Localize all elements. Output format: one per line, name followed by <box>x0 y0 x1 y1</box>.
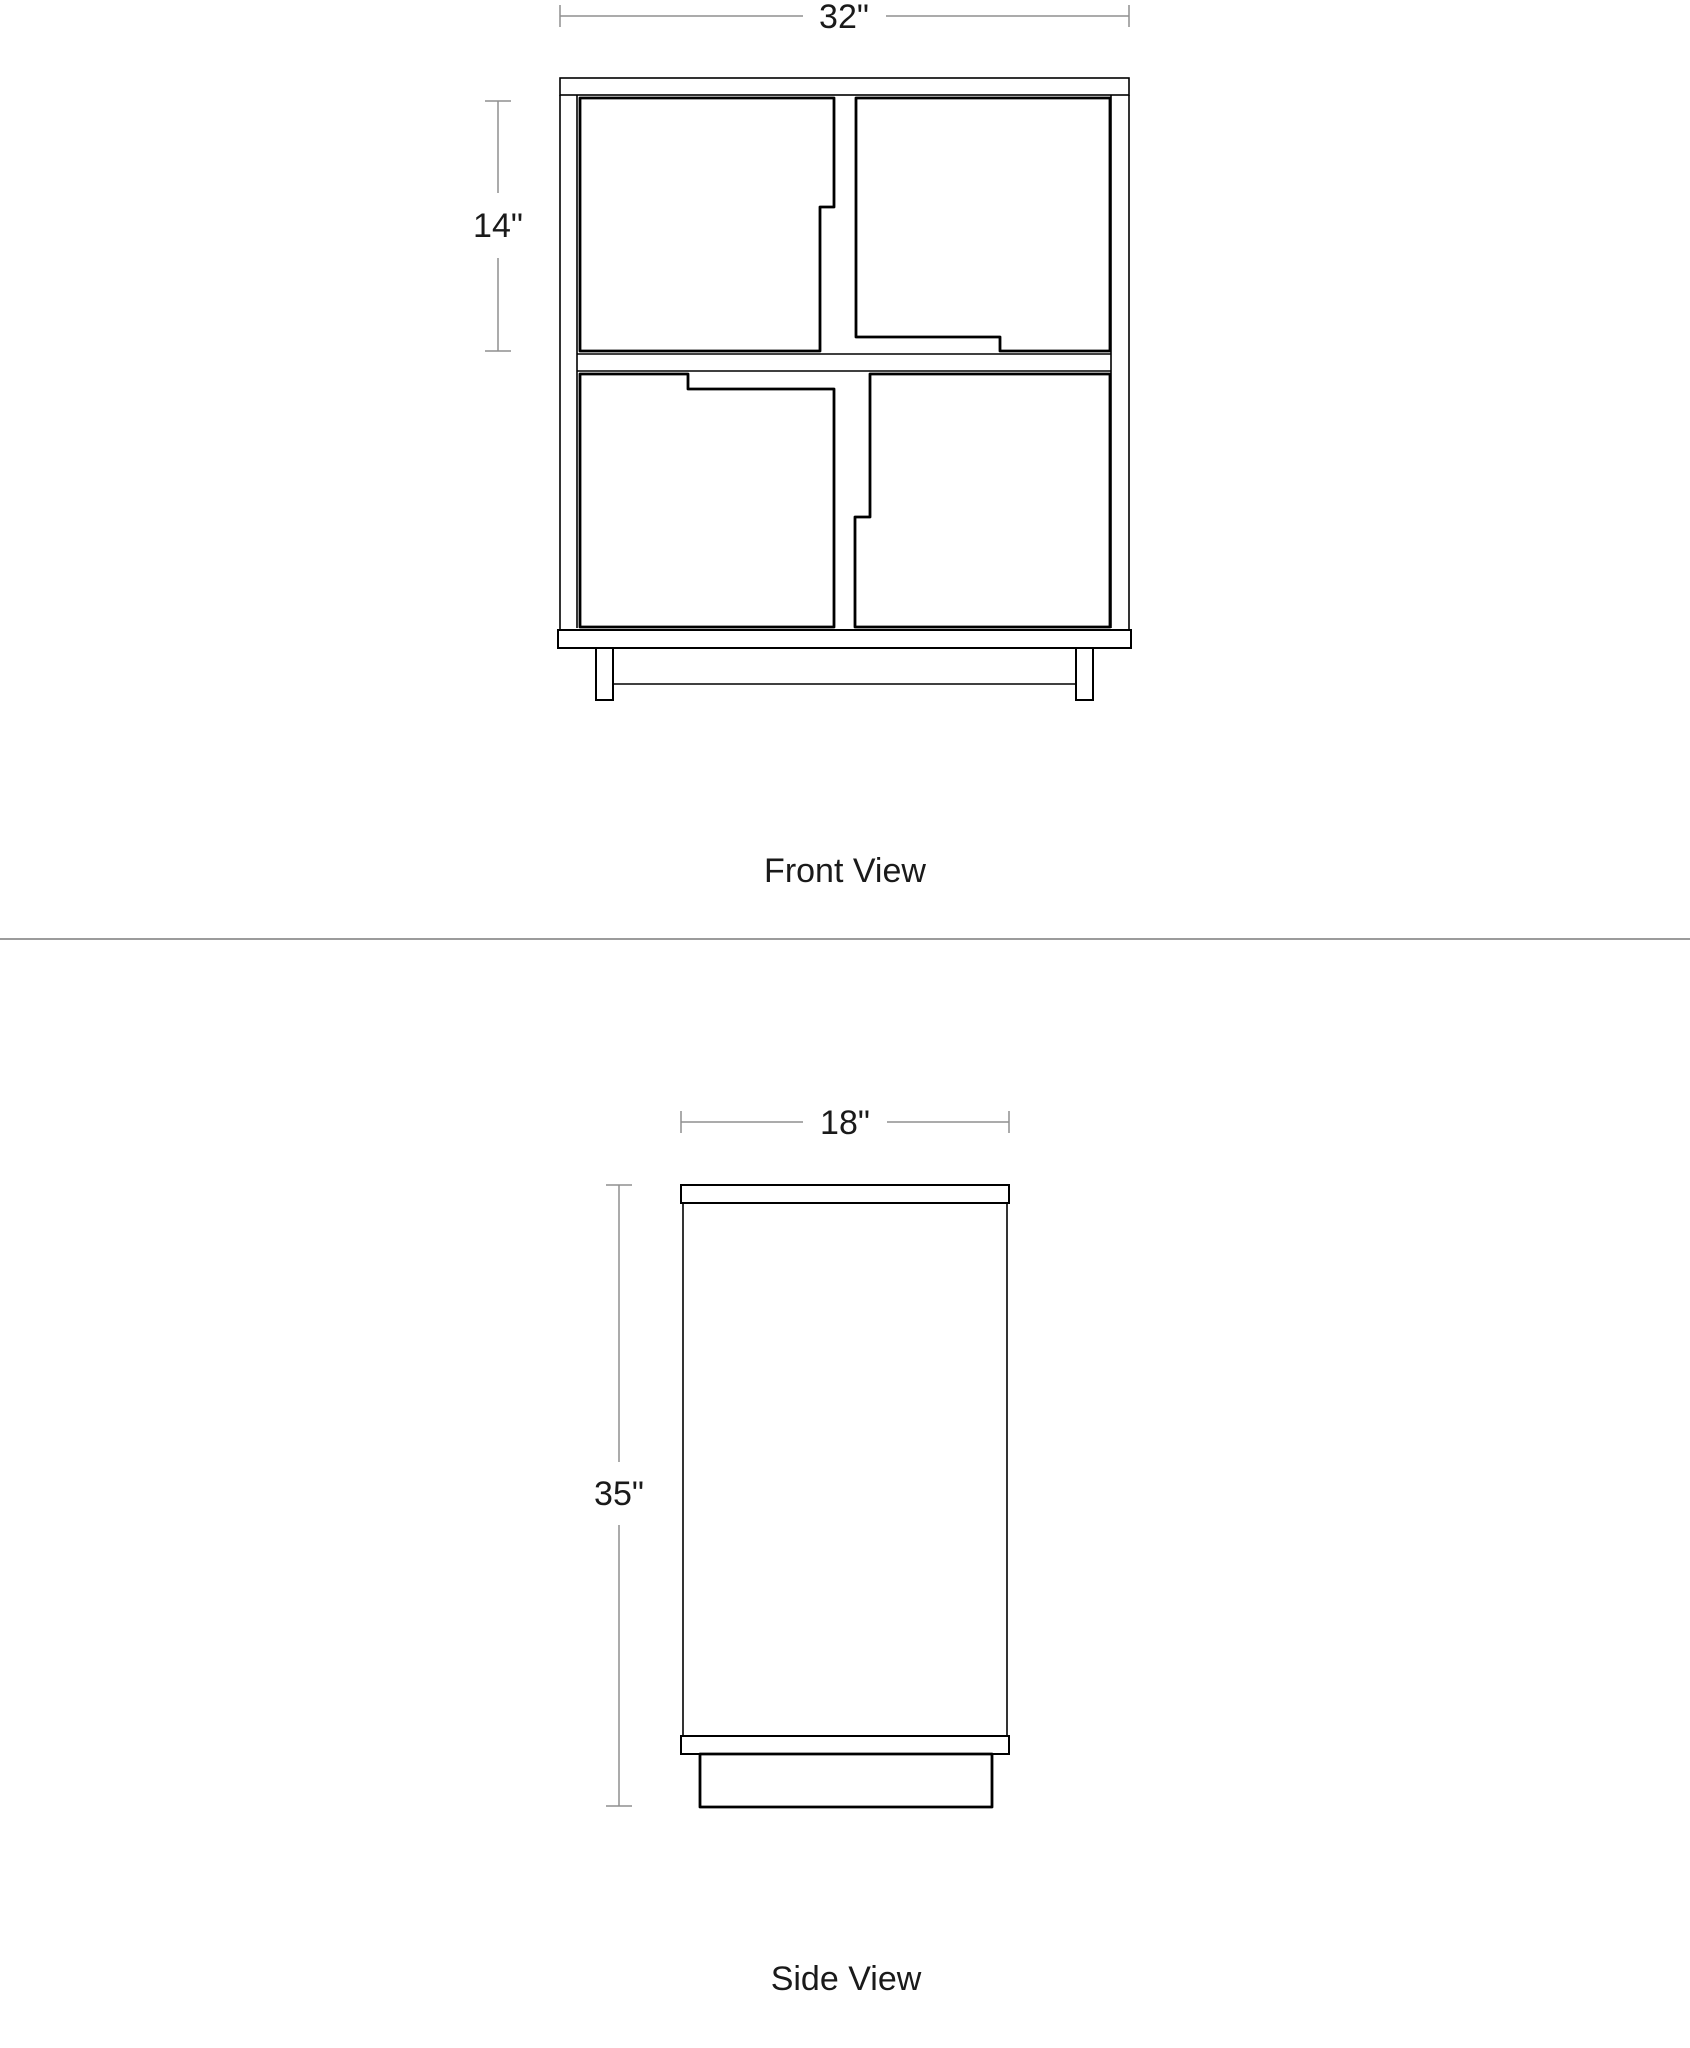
front-doors <box>580 98 1110 627</box>
front-width-dimension: 32" <box>560 0 1129 36</box>
cabinet-base-band <box>558 630 1131 648</box>
front-cell-height-dimension-label: 14" <box>473 207 523 245</box>
front-view-label: Front View <box>764 852 926 890</box>
front-cabinet-carcass <box>558 78 1131 648</box>
side-view-label: Side View <box>771 1960 922 1998</box>
side-depth-dimension-label: 18" <box>820 1104 870 1142</box>
side-top-panel <box>681 1185 1009 1203</box>
cabinet-top-panel <box>560 78 1129 95</box>
side-leg-plinth <box>700 1754 992 1807</box>
diagram-page: 32" 14" <box>0 0 1690 2048</box>
door-bottom-left <box>580 374 834 627</box>
front-width-dimension-label: 32" <box>819 0 869 36</box>
door-top-left <box>580 98 834 351</box>
side-height-dimension-label: 35" <box>594 1475 644 1513</box>
door-bottom-right <box>855 374 1110 627</box>
side-depth-dimension: 18" <box>681 1104 1009 1142</box>
front-view-drawing: 32" 14" <box>0 0 1690 938</box>
side-height-dimension: 35" <box>594 1185 644 1806</box>
side-view-drawing: 18" 35" Side View <box>0 940 1690 2048</box>
front-cell-height-dimension: 14" <box>473 101 523 351</box>
front-left-leg <box>596 648 613 700</box>
front-legs <box>596 648 1093 700</box>
side-base-band <box>681 1736 1009 1754</box>
side-cabinet-body <box>681 1185 1009 1807</box>
front-right-leg <box>1076 648 1093 700</box>
door-top-right <box>856 98 1110 351</box>
